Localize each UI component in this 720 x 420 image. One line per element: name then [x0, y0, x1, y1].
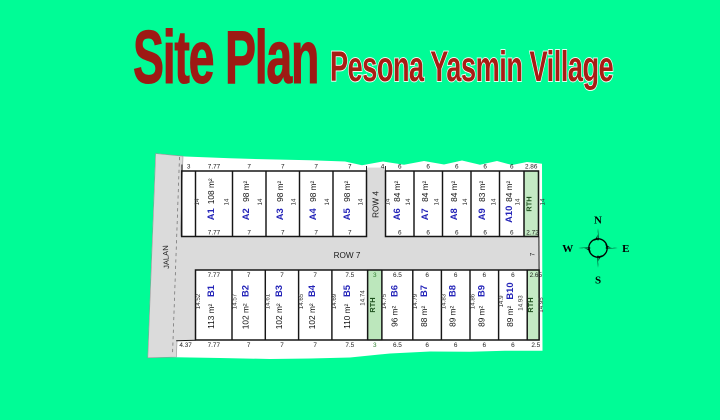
svg-text:B3: B3 [273, 285, 284, 297]
svg-text:84 m²: 84 m² [420, 180, 430, 201]
svg-text:6.5: 6.5 [393, 342, 402, 349]
svg-text:3: 3 [373, 342, 377, 349]
svg-text:102 m²: 102 m² [307, 303, 317, 329]
svg-text:3: 3 [187, 164, 191, 171]
svg-text:7: 7 [281, 230, 285, 237]
svg-text:6: 6 [426, 164, 430, 171]
svg-text:6: 6 [455, 230, 459, 237]
svg-text:7.77: 7.77 [208, 164, 221, 171]
svg-text:102 m²: 102 m² [274, 303, 284, 329]
svg-text:4.37: 4.37 [179, 342, 192, 349]
svg-text:N: N [594, 215, 602, 227]
svg-text:96 m²: 96 m² [389, 305, 399, 326]
svg-text:14: 14 [462, 198, 469, 205]
svg-text:7: 7 [313, 342, 317, 349]
svg-text:B4: B4 [306, 284, 317, 297]
svg-text:14.83: 14.83 [441, 293, 448, 309]
svg-text:B10: B10 [504, 282, 515, 299]
svg-text:89 m²: 89 m² [505, 305, 515, 326]
svg-text:14: 14 [491, 198, 498, 205]
svg-text:7.77: 7.77 [208, 272, 221, 279]
svg-text:2.86: 2.86 [525, 164, 538, 171]
svg-text:102 m²: 102 m² [241, 303, 251, 329]
svg-text:7: 7 [280, 342, 284, 349]
svg-text:7.77: 7.77 [208, 342, 221, 349]
svg-text:6.5: 6.5 [393, 272, 402, 279]
svg-text:A4: A4 [307, 208, 318, 221]
svg-text:14.52: 14.52 [195, 293, 202, 309]
svg-text:6: 6 [483, 230, 487, 237]
svg-text:14.69: 14.69 [331, 293, 338, 309]
svg-text:88 m²: 88 m² [419, 305, 429, 326]
svg-text:6: 6 [425, 342, 429, 349]
svg-text:14: 14 [194, 198, 201, 205]
svg-text:110 m²: 110 m² [342, 303, 352, 328]
svg-text:A8: A8 [448, 208, 459, 220]
svg-text:7: 7 [280, 272, 284, 279]
svg-text:14.95: 14.95 [538, 297, 545, 313]
svg-text:A5: A5 [341, 208, 352, 220]
svg-text:2.5: 2.5 [531, 342, 540, 349]
svg-text:14: 14 [539, 198, 546, 205]
svg-text:RTH: RTH [368, 297, 377, 312]
svg-text:98 m²: 98 m² [241, 180, 251, 201]
svg-text:S: S [595, 275, 601, 287]
svg-text:RTH: RTH [525, 196, 534, 211]
svg-text:B5: B5 [341, 285, 352, 297]
svg-text:113 m²: 113 m² [206, 303, 216, 328]
svg-text:89 m²: 89 m² [476, 305, 486, 326]
svg-text:A3: A3 [274, 208, 285, 220]
svg-text:6: 6 [511, 272, 515, 279]
svg-text:B9: B9 [475, 285, 486, 297]
svg-text:84 m²: 84 m² [449, 180, 459, 201]
svg-text:A9: A9 [476, 208, 487, 220]
svg-text:6: 6 [455, 164, 459, 171]
svg-text:14: 14 [385, 198, 392, 205]
svg-text:14.86: 14.86 [469, 293, 476, 309]
svg-text:7: 7 [313, 272, 317, 279]
svg-text:84 m²: 84 m² [392, 180, 402, 201]
svg-text:2.72: 2.72 [526, 230, 539, 237]
svg-text:A1: A1 [205, 208, 216, 220]
svg-text:W: W [562, 243, 573, 255]
svg-text:ROW 4: ROW 4 [372, 191, 381, 218]
svg-text:6: 6 [483, 272, 487, 279]
svg-text:2.65: 2.65 [530, 272, 543, 279]
svg-text:14.93: 14.93 [518, 295, 525, 311]
svg-text:6: 6 [425, 272, 429, 279]
svg-text:108 m²: 108 m² [206, 178, 216, 204]
svg-text:14.65: 14.65 [298, 293, 305, 309]
svg-text:4: 4 [381, 164, 385, 171]
svg-text:7: 7 [314, 164, 318, 171]
svg-text:7.77: 7.77 [208, 230, 221, 237]
svg-text:7: 7 [348, 230, 352, 237]
svg-text:6: 6 [454, 342, 458, 349]
svg-text:7: 7 [247, 272, 251, 279]
svg-text:14: 14 [291, 198, 298, 205]
svg-text:A7: A7 [419, 208, 430, 220]
svg-text:6: 6 [454, 272, 458, 279]
svg-text:84 m²: 84 m² [504, 180, 514, 201]
svg-text:7: 7 [530, 252, 537, 256]
svg-text:7: 7 [281, 164, 285, 171]
svg-text:B8: B8 [447, 285, 458, 297]
svg-text:B7: B7 [418, 285, 429, 297]
svg-text:A2: A2 [240, 208, 251, 220]
svg-text:14: 14 [224, 198, 231, 205]
svg-text:B1: B1 [205, 285, 216, 297]
svg-text:E: E [622, 243, 629, 255]
svg-text:6: 6 [511, 342, 515, 349]
svg-text:14.74: 14.74 [359, 290, 366, 306]
svg-text:ROW 7: ROW 7 [334, 251, 361, 260]
svg-text:A6: A6 [391, 208, 402, 220]
svg-text:B2: B2 [240, 285, 251, 297]
svg-text:7.5: 7.5 [345, 342, 354, 349]
svg-text:14.9: 14.9 [498, 295, 505, 308]
svg-text:14: 14 [434, 198, 441, 205]
svg-text:7: 7 [247, 230, 251, 237]
svg-text:6: 6 [483, 342, 487, 349]
svg-text:7.5: 7.5 [345, 272, 354, 279]
svg-text:98 m²: 98 m² [308, 180, 318, 201]
svg-text:14.79: 14.79 [412, 293, 419, 309]
svg-text:89 m²: 89 m² [448, 305, 458, 326]
svg-text:14.75: 14.75 [381, 293, 388, 309]
svg-text:14: 14 [405, 198, 412, 205]
svg-text:14: 14 [257, 198, 264, 205]
svg-text:14.57: 14.57 [231, 293, 238, 309]
svg-text:JALAN: JALAN [161, 245, 171, 269]
svg-text:6: 6 [510, 230, 514, 237]
svg-text:7: 7 [348, 164, 352, 171]
svg-text:98 m²: 98 m² [275, 180, 285, 201]
svg-text:6: 6 [426, 230, 430, 237]
svg-text:Pesona Yasmin Village: Pesona Yasmin Village [330, 42, 613, 91]
svg-text:B6: B6 [388, 285, 399, 297]
svg-text:7: 7 [247, 342, 251, 349]
svg-text:98 m²: 98 m² [342, 180, 352, 201]
svg-text:14: 14 [515, 198, 522, 205]
svg-text:83 m²: 83 m² [477, 180, 487, 201]
svg-text:14.61: 14.61 [265, 293, 272, 309]
svg-text:3: 3 [373, 272, 377, 279]
svg-text:6: 6 [398, 230, 402, 237]
svg-text:14: 14 [358, 198, 365, 205]
svg-text:7: 7 [247, 164, 251, 171]
svg-text:Site Plan: Site Plan [133, 17, 318, 100]
svg-text:6: 6 [398, 164, 402, 171]
svg-text:6: 6 [510, 164, 514, 171]
svg-text:14: 14 [324, 198, 331, 205]
svg-text:A10: A10 [503, 206, 514, 223]
svg-text:7: 7 [314, 230, 318, 237]
svg-text:6: 6 [483, 164, 487, 171]
